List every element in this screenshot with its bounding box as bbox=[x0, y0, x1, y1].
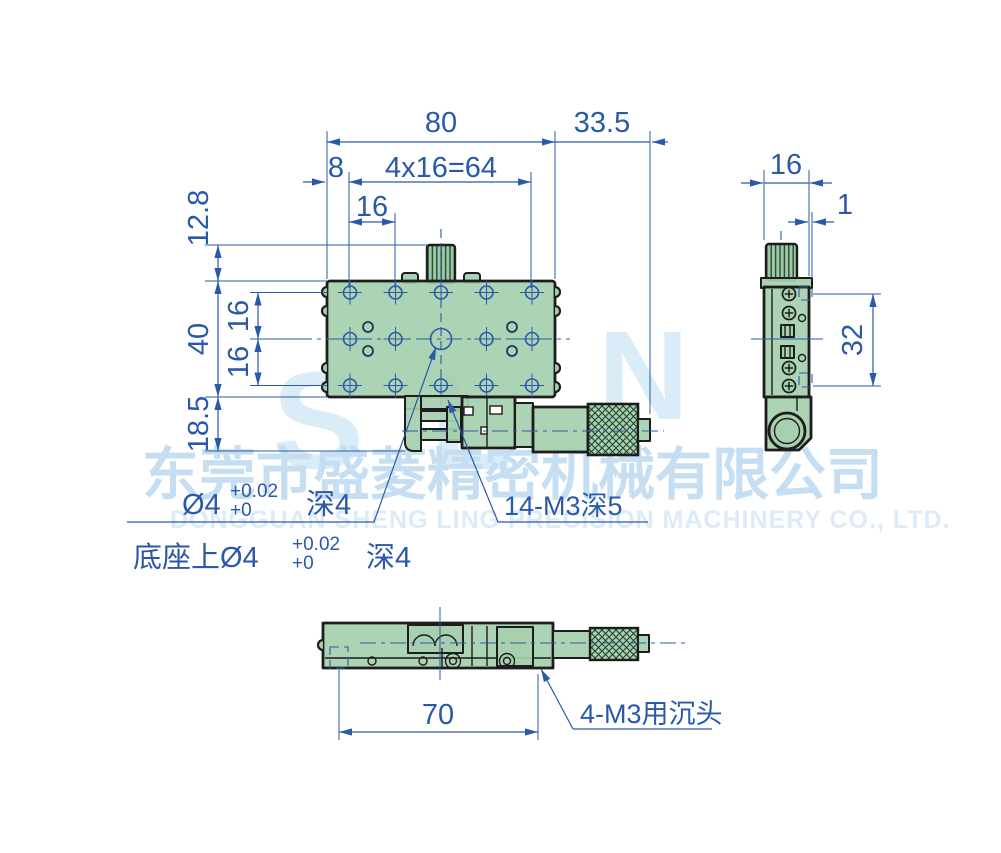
dim-hole-pattern-label: 4x16=64 bbox=[385, 152, 497, 184]
annotation-base-hole-tol-upper: +0.02 bbox=[292, 534, 340, 555]
bottom-view bbox=[318, 607, 688, 680]
annotation-thread-holes: 14-M3深5 bbox=[504, 491, 623, 521]
annotation-base-hole-tol-lower: +0 bbox=[292, 553, 314, 574]
dim-overall-depth-label: 40 bbox=[183, 323, 215, 355]
adjust-knob-side bbox=[766, 244, 797, 280]
micrometer-barrel-bottom bbox=[553, 631, 590, 658]
dim-screw-span-label: 32 bbox=[837, 324, 869, 356]
top-view bbox=[296, 229, 664, 455]
dim-row-pitch-lower-label: 16 bbox=[223, 346, 255, 378]
micrometer-barrel bbox=[533, 407, 588, 452]
annotation-base-hole-prefix: 底座上Ø4 bbox=[133, 541, 259, 574]
dim-plate-offset-label: 1 bbox=[837, 189, 853, 221]
annotation-center-hole-tol-lower: +0 bbox=[230, 500, 252, 521]
dim-overall-width-label: 80 bbox=[425, 107, 457, 139]
annotation-countersunk-holes: 4-M3用沉头 bbox=[580, 699, 723, 729]
drawing-page: S L N 东莞市盛菱精密机械有限公司 DONGGUAN SHENG LING … bbox=[0, 0, 1001, 853]
annotation-base-hole-suffix: 深4 bbox=[366, 542, 411, 574]
base-and-micrometer bbox=[402, 396, 664, 455]
dimensions-side: 16 1 32 bbox=[741, 149, 881, 386]
annotation-center-hole-prefix: Ø4 bbox=[182, 489, 221, 521]
dim-edge-margin-label: 8 bbox=[328, 152, 344, 184]
dim-micrometer-offset-label: 33.5 bbox=[574, 107, 630, 139]
micrometer-knurl bbox=[588, 404, 638, 455]
leader-countersunk bbox=[541, 669, 573, 729]
annotation-center-hole-suffix: 深4 bbox=[306, 489, 351, 521]
dim-thickness-label: 16 bbox=[770, 149, 802, 181]
micrometer-knurl-bottom bbox=[590, 628, 638, 660]
dim-mount-length-label: 70 bbox=[422, 699, 454, 731]
dim-base-height-label: 18.5 bbox=[183, 396, 215, 452]
spindle-housing bbox=[462, 397, 515, 448]
technical-drawing: 80 33.5 8 4x16=64 16 12.8 bbox=[0, 0, 1001, 853]
annotation-center-hole-tol-upper: +0.02 bbox=[230, 481, 278, 502]
micrometer-tip bbox=[638, 419, 650, 441]
dimensions-bottom: 70 4-M3用沉头 bbox=[339, 669, 723, 740]
dim-row-pitch-upper-label: 16 bbox=[223, 300, 255, 332]
dim-hole-pitch-label: 16 bbox=[356, 191, 388, 223]
spindle-cap bbox=[447, 407, 461, 442]
dim-knob-offset-label: 12.8 bbox=[183, 190, 215, 246]
